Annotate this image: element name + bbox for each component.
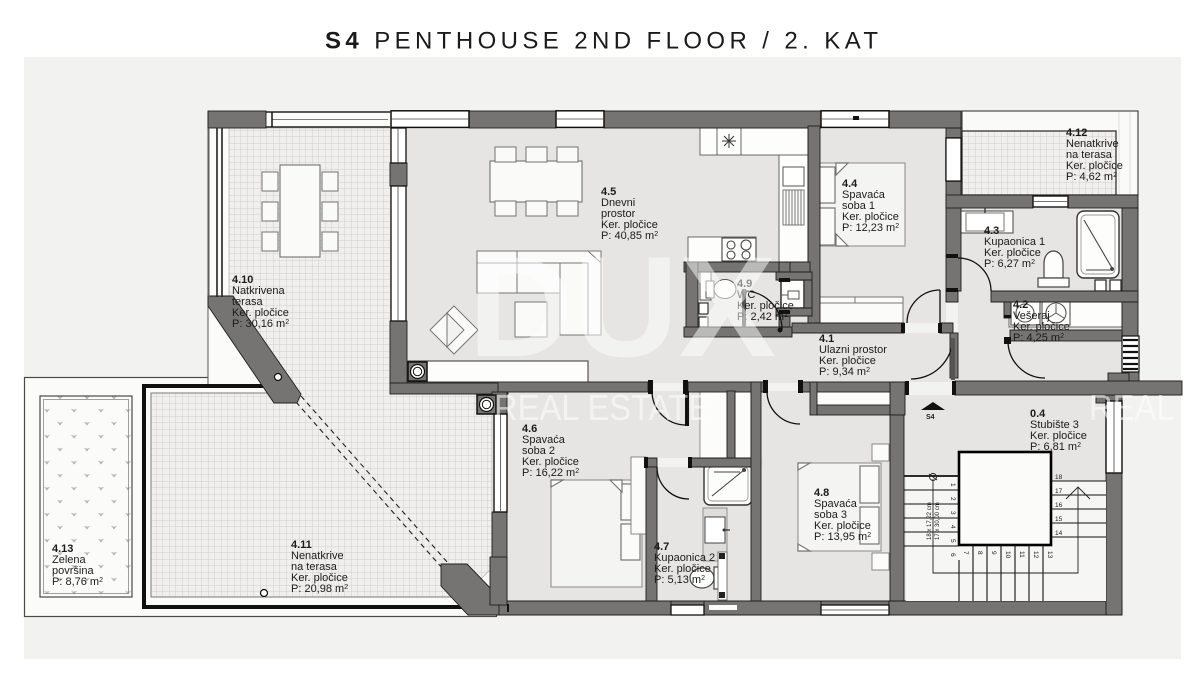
svg-text:P: 5,13 m2: P: 5,13 m2 [654,574,705,586]
svg-text:11: 11 [1018,551,1025,558]
svg-text:S4: S4 [926,414,935,421]
svg-text:14: 14 [1055,530,1063,537]
svg-text:13: 13 [1046,551,1053,559]
svg-text:10: 10 [1004,551,1011,559]
svg-text:12: 12 [1032,551,1039,559]
svg-text:REAL ESTATE: REAL ESTATE [1089,387,1200,428]
svg-text:P: 6,27 m2: P: 6,27 m2 [984,258,1035,270]
svg-text:16: 16 [1055,502,1063,509]
svg-text:P: 4,62 m2: P: 4,62 m2 [1066,171,1117,183]
svg-text:17: 17 [1055,488,1063,495]
svg-text:7: 7 [962,551,969,555]
svg-text:P: 9,34 m2: P: 9,34 m2 [819,366,870,378]
svg-text:6: 6 [949,553,956,557]
svg-text:17 x 30,00 cm: 17 x 30,00 cm [935,502,941,540]
svg-text:15: 15 [1055,516,1063,523]
svg-text:P: 12,23 m2: P: 12,23 m2 [842,222,899,234]
svg-text:18: 18 [1055,474,1063,481]
svg-text:8: 8 [976,551,983,555]
svg-text:P: 16,22 m2: P: 16,22 m2 [522,467,579,479]
svg-text:9: 9 [990,551,997,555]
svg-text:P: 13,95 m2: P: 13,95 m2 [814,531,871,543]
svg-text:3: 3 [949,511,956,515]
svg-text:5: 5 [949,539,956,543]
svg-text:REAL ESTATE: REAL ESTATE [494,387,710,428]
svg-text:P: 4,25 m2: P: 4,25 m2 [1013,332,1064,344]
svg-text:2: 2 [949,497,956,501]
svg-text:P: 6,81 m2: P: 6,81 m2 [1030,441,1081,453]
svg-text:P: 20,98 m2: P: 20,98 m2 [291,583,348,595]
svg-text:DUX: DUX [468,228,776,387]
svg-text:4: 4 [949,525,956,529]
svg-text:18 x 17,22 cm: 18 x 17,22 cm [927,502,933,540]
svg-text:P: 30,16 m2: P: 30,16 m2 [232,318,289,330]
svg-text:P: 8,76 m2: P: 8,76 m2 [52,576,103,588]
svg-text:1: 1 [949,483,956,487]
svg-text:S4 PENTHOUSE 2ND FLOOR / 2. KA: S4 PENTHOUSE 2ND FLOOR / 2. KAT [325,28,882,55]
